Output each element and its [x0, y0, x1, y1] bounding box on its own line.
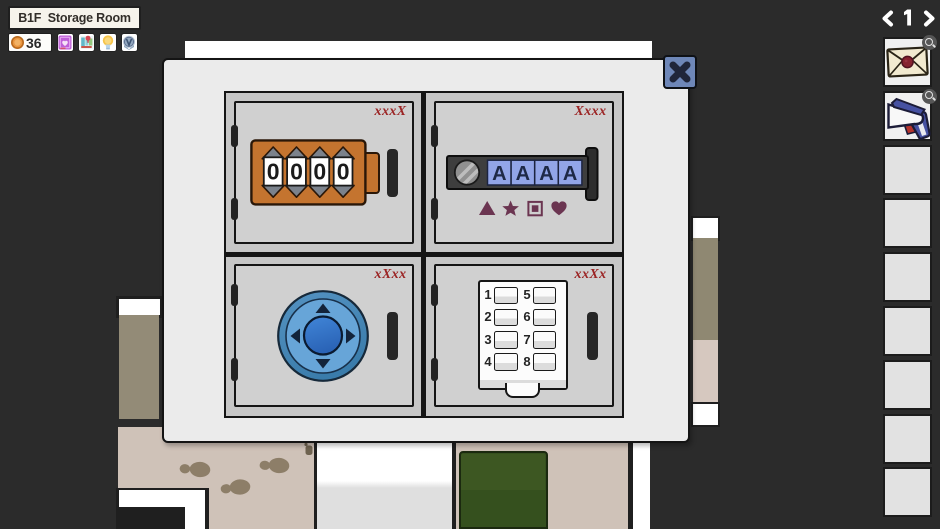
svg-text:0: 0 [313, 159, 326, 185]
svg-text:A: A [539, 163, 553, 185]
svg-text:A: A [562, 163, 576, 185]
svg-text:0: 0 [267, 159, 280, 185]
svg-text:A: A [515, 163, 529, 185]
svg-text:0: 0 [337, 159, 350, 185]
svg-text:0: 0 [290, 159, 303, 185]
svg-text:A: A [492, 163, 506, 185]
